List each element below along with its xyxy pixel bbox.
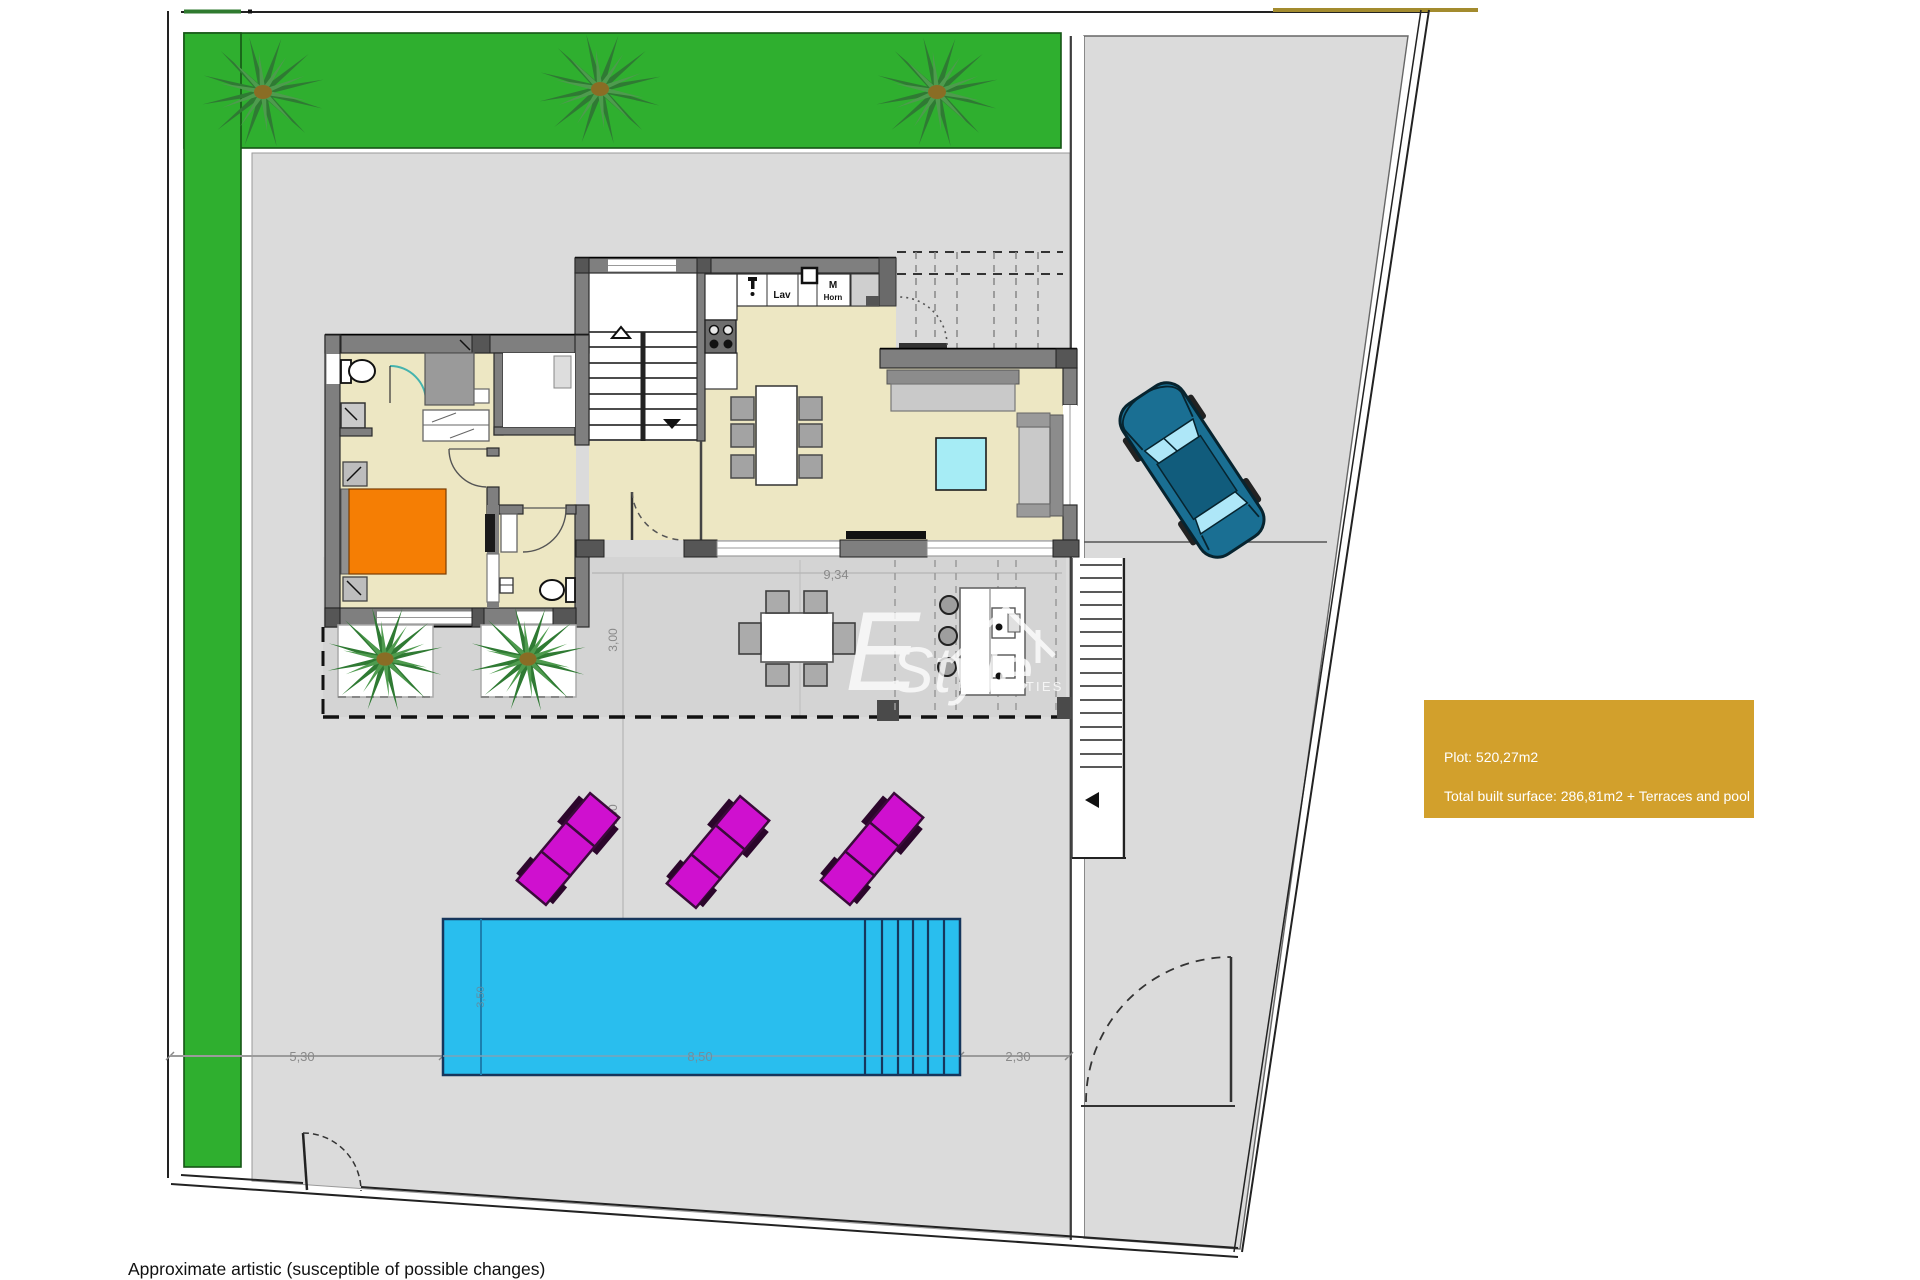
svg-text:M: M (829, 280, 837, 291)
svg-text:8,50: 8,50 (687, 1049, 712, 1064)
svg-text:9,34: 9,34 (823, 567, 848, 582)
svg-text:Approximate artistic (suscepti: Approximate artistic (susceptible of pos… (128, 1259, 545, 1279)
svg-text:Lav: Lav (773, 290, 791, 301)
svg-text:3,00: 3,00 (606, 628, 620, 652)
svg-text:Plot: 520,27m2: Plot: 520,27m2 (1444, 749, 1538, 765)
svg-text:PROPERTIES: PROPERTIES (958, 679, 1064, 694)
svg-text:2,30: 2,30 (1005, 1049, 1030, 1064)
svg-text:Horn: Horn (824, 293, 843, 302)
svg-text:3,50: 3,50 (475, 986, 487, 1007)
svg-text:Total built surface: 286,81m2: Total built surface: 286,81m2 + Terraces… (1444, 788, 1750, 804)
svg-text:Style: Style (891, 634, 1033, 706)
svg-text:5,30: 5,30 (289, 1049, 314, 1064)
